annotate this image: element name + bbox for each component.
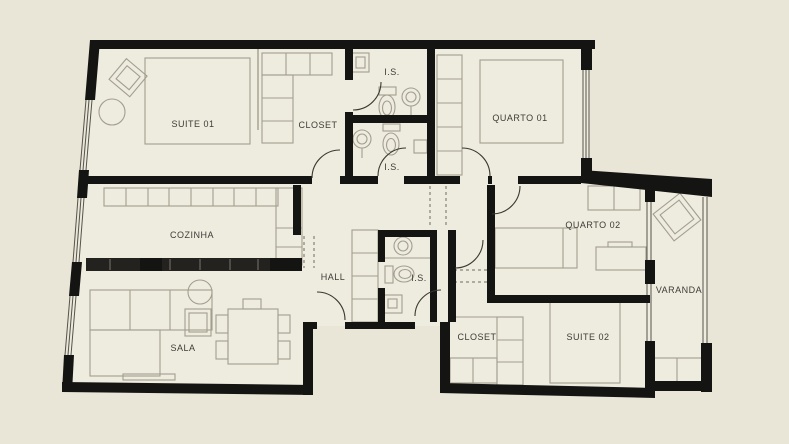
room-label-cozinha: COZINHA: [170, 230, 214, 240]
room-label-hall: HALL: [321, 272, 346, 282]
room-label-closet-top: CLOSET: [298, 120, 337, 130]
room-label-quarto-02: QUARTO 02: [565, 220, 620, 230]
floor-plan-image: SUITE 01 CLOSET I.S. QUARTO 01 I.S. COZI…: [0, 0, 789, 444]
room-label-is-mid: I.S.: [384, 162, 400, 172]
room-label-is-lower: I.S.: [411, 273, 427, 283]
floor-plan-screenshot: SUITE 01 CLOSET I.S. QUARTO 01 I.S. COZI…: [0, 0, 789, 444]
room-label-closet-bottom: CLOSET: [457, 332, 496, 342]
room-label-suite-01: SUITE 01: [171, 119, 214, 129]
room-label-sala: SALA: [170, 343, 195, 353]
room-label-varanda: VARANDA: [656, 285, 702, 295]
room-label-is-top: I.S.: [384, 67, 400, 77]
room-label-quarto-01: QUARTO 01: [492, 113, 547, 123]
room-label-suite-02: SUITE 02: [566, 332, 609, 342]
